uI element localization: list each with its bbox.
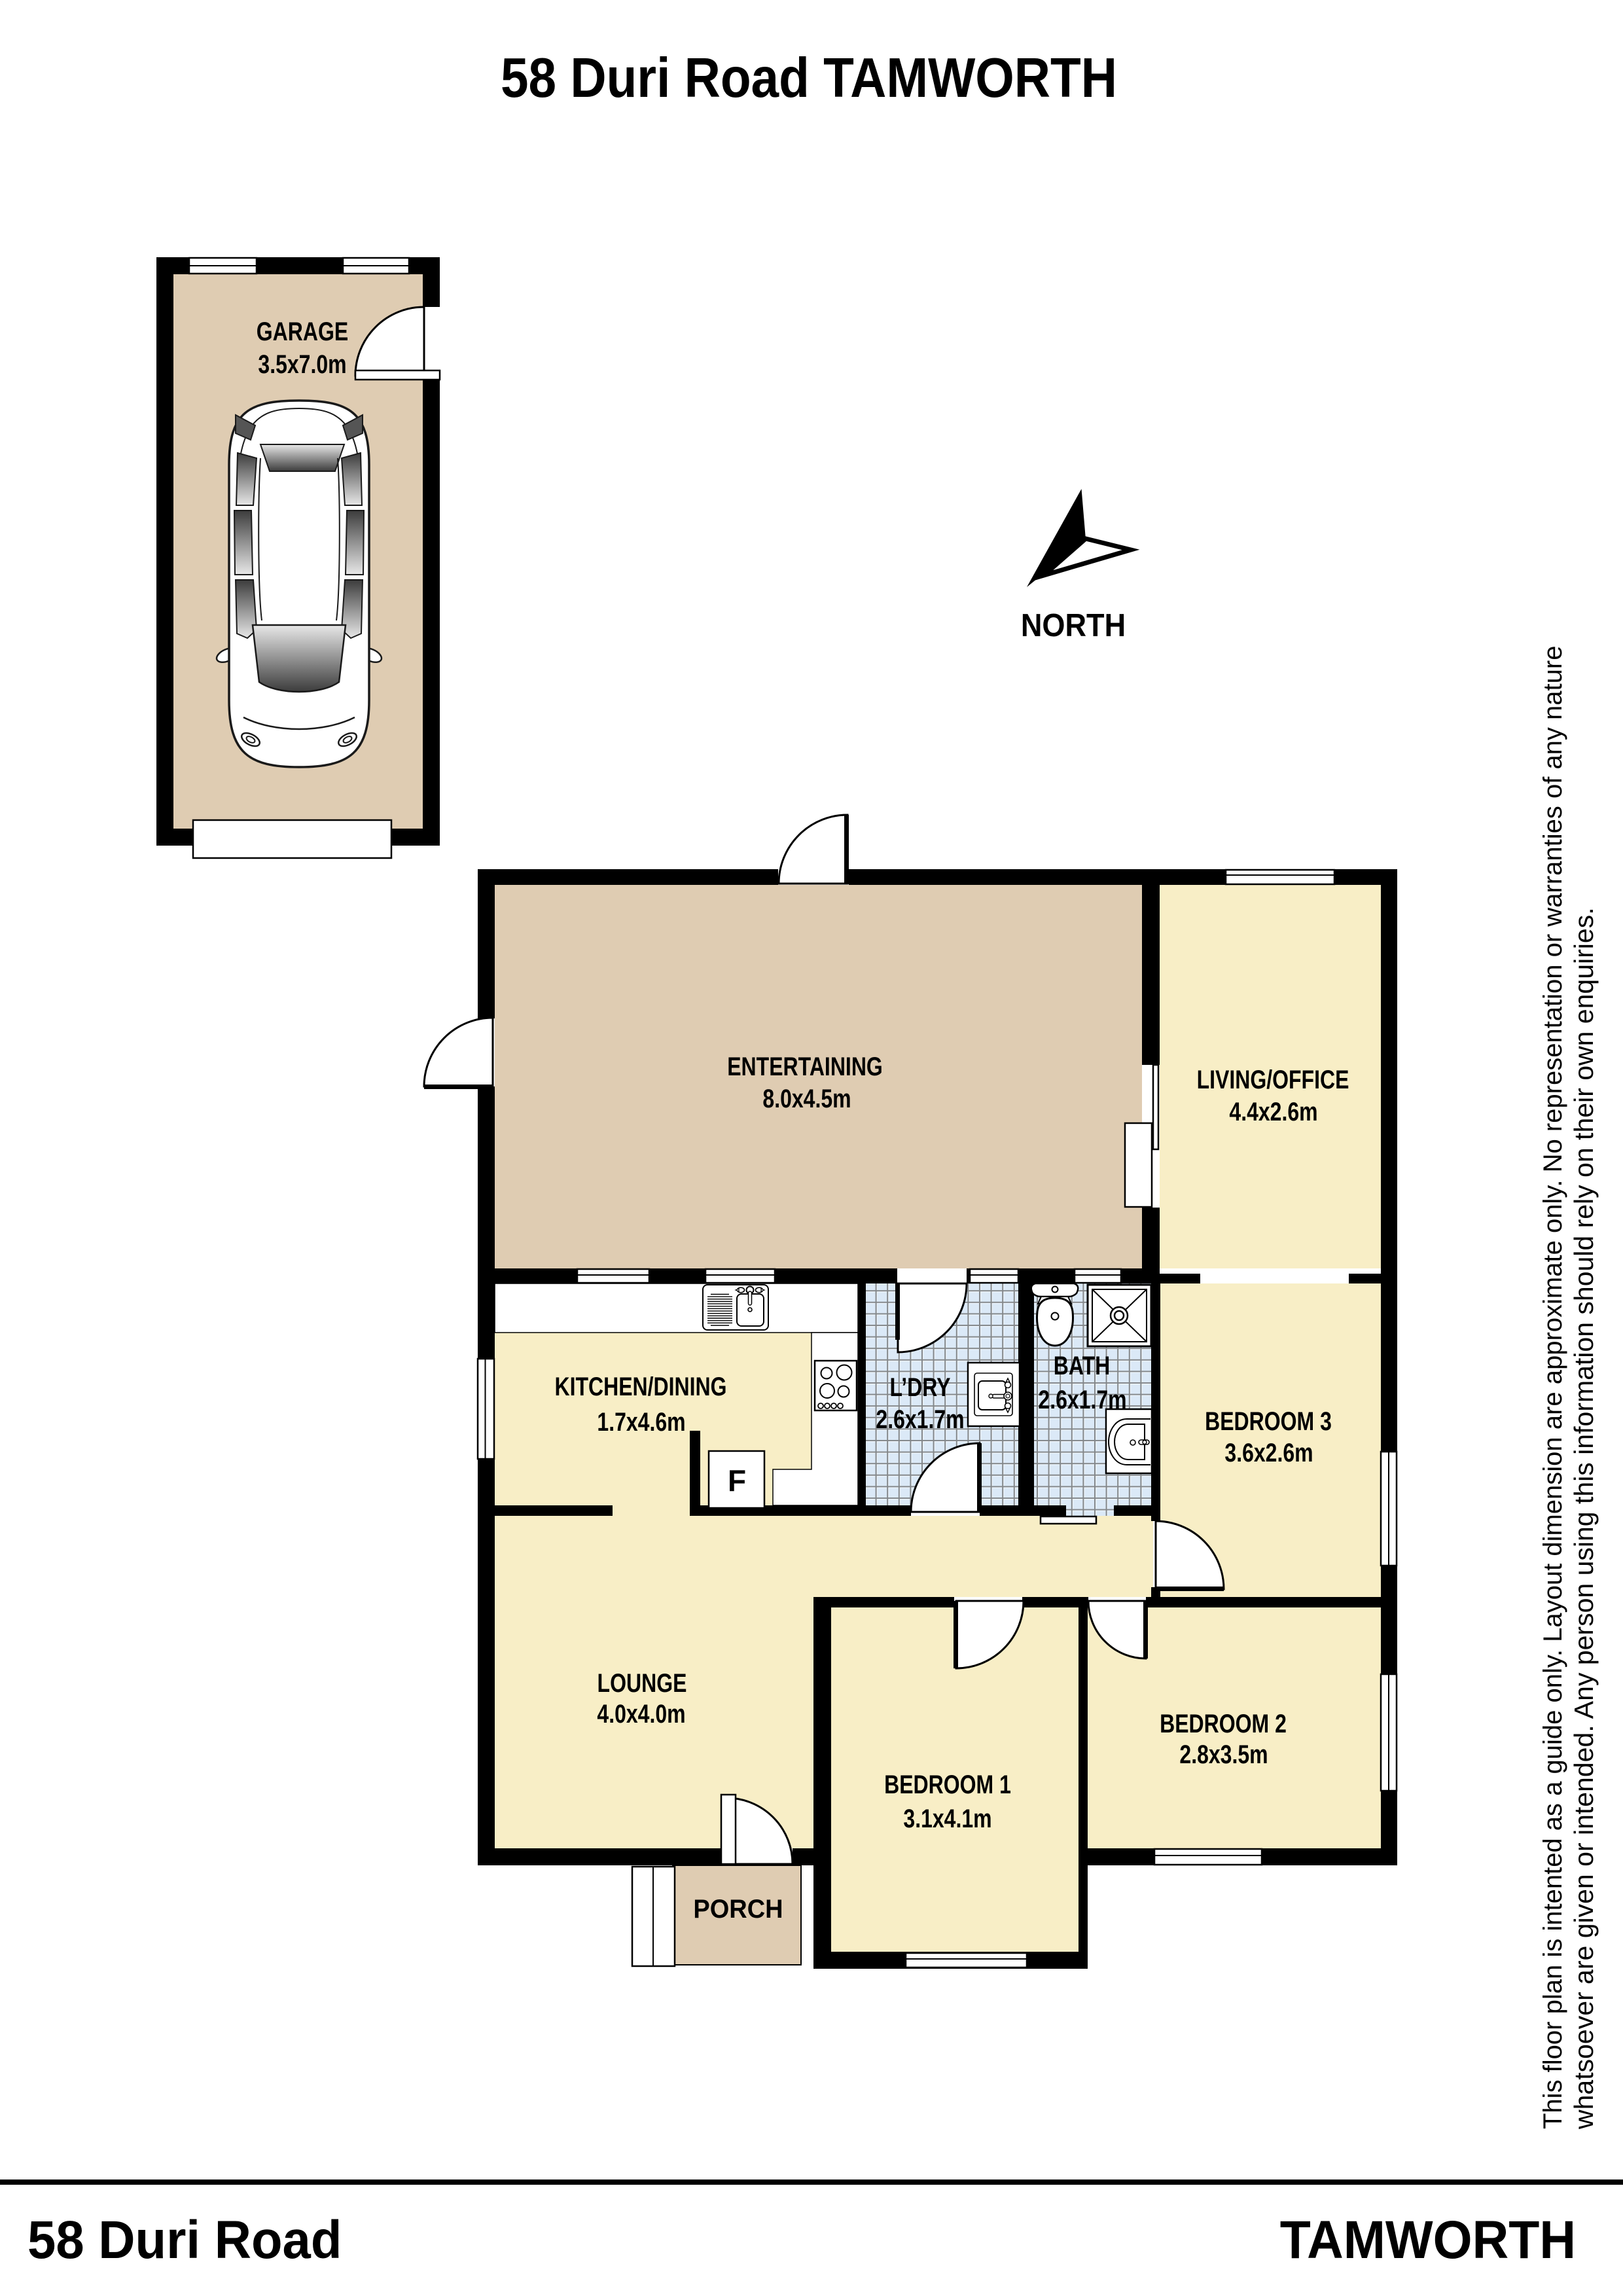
svg-text:3.5x7.0m: 3.5x7.0m <box>258 349 346 378</box>
svg-text:NORTH: NORTH <box>1021 607 1126 643</box>
svg-text:whatsoever are given or intend: whatsoever are given or intended. Any pe… <box>1569 907 1599 2130</box>
svg-text:1.7x4.6m: 1.7x4.6m <box>597 1407 685 1436</box>
svg-text:8.0x4.5m: 8.0x4.5m <box>762 1083 851 1113</box>
svg-text:BEDROOM 1: BEDROOM 1 <box>884 1769 1011 1799</box>
svg-text:GARAGE: GARAGE <box>257 316 348 346</box>
svg-text:L’DRY: L’DRY <box>889 1372 950 1401</box>
svg-text:ENTERTAINING: ENTERTAINING <box>727 1051 883 1081</box>
svg-text:58 Duri Road: 58 Duri Road <box>27 2210 342 2269</box>
svg-text:4.0x4.0m: 4.0x4.0m <box>597 1698 685 1728</box>
svg-text:PORCH: PORCH <box>693 1895 783 1924</box>
svg-text:BATH: BATH <box>1054 1350 1110 1380</box>
svg-text:LIVING/OFFICE: LIVING/OFFICE <box>1197 1064 1349 1094</box>
svg-text:LOUNGE: LOUNGE <box>597 1668 687 1697</box>
svg-text:3.1x4.1m: 3.1x4.1m <box>903 1803 991 1833</box>
svg-text:This floor plan is intented as: This floor plan is intented as a guide o… <box>1539 646 1567 2129</box>
svg-text:KITCHEN/DINING: KITCHEN/DINING <box>554 1371 726 1401</box>
svg-text:BEDROOM 3: BEDROOM 3 <box>1205 1406 1332 1435</box>
svg-text:BEDROOM 2: BEDROOM 2 <box>1160 1708 1287 1738</box>
svg-text:2.6x1.7m: 2.6x1.7m <box>876 1404 964 1433</box>
svg-text:2.6x1.7m: 2.6x1.7m <box>1038 1384 1126 1414</box>
svg-text:58 Duri Road TAMWORTH: 58 Duri Road TAMWORTH <box>501 47 1117 109</box>
svg-text:F: F <box>728 1463 746 1498</box>
svg-text:4.4x2.6m: 4.4x2.6m <box>1229 1096 1317 1126</box>
svg-text:2.8x3.5m: 2.8x3.5m <box>1179 1739 1268 1768</box>
svg-text:3.6x2.6m: 3.6x2.6m <box>1224 1437 1313 1467</box>
svg-text:TAMWORTH: TAMWORTH <box>1280 2210 1576 2270</box>
